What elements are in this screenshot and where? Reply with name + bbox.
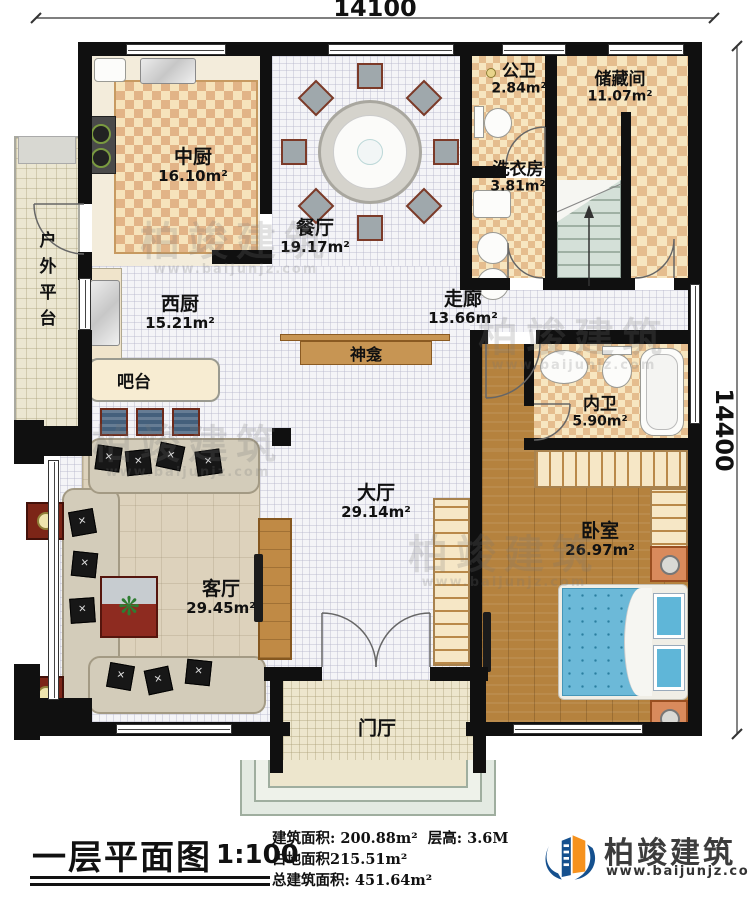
bar-counter: [88, 358, 220, 402]
window: [126, 44, 226, 55]
room-label-storage: 储藏间11.07m²: [587, 71, 652, 106]
bathtub-inner: [646, 354, 678, 430]
toilet-icon: [484, 108, 512, 138]
plan-info: 建筑面积: 200.88m² 层高: 3.6M 占地面积215.51m² 总建筑…: [272, 828, 522, 891]
hall-closet: [433, 498, 470, 666]
sofa-pillow: ✕: [94, 444, 122, 472]
bar-stool: [100, 408, 128, 436]
dimension-top: 14100: [333, 0, 417, 22]
wall: [473, 681, 486, 773]
bed-pillow: [654, 594, 684, 638]
kitchen-sink: [140, 58, 196, 84]
sofa-pillow: ✕: [68, 508, 97, 537]
lazy-susan: [357, 139, 383, 165]
toilet-icon: [602, 354, 632, 388]
window: [328, 44, 454, 55]
window: [690, 284, 700, 424]
sofa-pillow: ✕: [106, 662, 135, 691]
info-line-1: 建筑面积: 200.88m² 层高: 3.6M: [272, 828, 522, 849]
sofa-pillow: ✕: [69, 597, 96, 624]
stove-burner: [91, 124, 111, 144]
wall: [270, 681, 283, 773]
dining-chair: [357, 215, 383, 241]
room-label-laundry: 洗衣房3.81m²: [490, 161, 545, 196]
title-block: 一层平面图 1:100 建筑面积: 200.88m² 层高: 3.6M 占地面积…: [0, 820, 750, 897]
bar-stool: [136, 408, 164, 436]
room-label-dining: 餐厅19.17m²: [280, 218, 350, 256]
label-foyer: 门厅: [358, 714, 396, 741]
company-url: www.baijunjz.com: [606, 864, 750, 879]
room-label-ensuite: 内卫5.90m²: [572, 396, 627, 431]
toilet-tank: [474, 106, 484, 138]
label-outdoor-platform: 户外平台: [34, 231, 59, 335]
room-label-west-kitchen: 西厨15.21m²: [145, 294, 215, 332]
wall: [78, 42, 92, 204]
bed-pillow: [654, 646, 684, 690]
plan-title: 一层平面图: [32, 830, 212, 879]
bay-window: [48, 460, 59, 700]
wall: [430, 667, 488, 681]
wall: [78, 252, 92, 280]
floor-plan: ✕ ✕ ✕ ✕ ✕ ✕ ✕ ✕ ✕ ✕ ❋: [0, 0, 750, 897]
stove-burner: [91, 148, 111, 168]
platform-planter: [18, 136, 76, 164]
room-label-public-wc: 公卫2.84m²: [491, 63, 546, 98]
sofa-pillow: ✕: [144, 666, 174, 696]
window: [79, 278, 91, 330]
room-label-living: 客厅29.45m²: [186, 579, 256, 617]
wall: [524, 344, 534, 406]
sofa-pillow: ✕: [125, 449, 152, 476]
dining-chair: [357, 63, 383, 89]
kitchen-cabinet: [94, 58, 126, 82]
room-label-corridor: 走廊13.66m²: [428, 289, 498, 327]
coffee-table-with-plant: ❋: [100, 576, 158, 638]
dining-chair: [281, 139, 307, 165]
wall: [543, 278, 635, 290]
wall: [264, 667, 322, 681]
window: [502, 44, 566, 55]
wall: [212, 250, 272, 264]
window: [116, 724, 232, 734]
wall: [14, 664, 40, 740]
company-logo-icon: [540, 826, 598, 888]
sofa-pillow: ✕: [194, 448, 222, 476]
nightstand: [650, 546, 688, 582]
info-line-3: 总建筑面积: 451.64m²: [272, 870, 522, 891]
label-shrine: 神龛: [350, 341, 382, 365]
bar-stool: [172, 408, 200, 436]
room-label-hall: 大厅29.14m²: [341, 483, 411, 521]
shrine-plank: [280, 334, 450, 341]
west-kitchen-sink: [90, 280, 120, 346]
wall: [14, 420, 44, 464]
dimension-right: 14400: [710, 388, 738, 472]
laundry-basin: [477, 232, 509, 264]
sofa-pillow: ✕: [156, 442, 186, 472]
entry-steps: [268, 760, 468, 788]
wall: [524, 438, 688, 450]
bedroom-tv: [483, 612, 491, 672]
title-underline: [30, 883, 270, 886]
wall: [78, 330, 92, 436]
label-bar: 吧台: [117, 368, 151, 393]
wall: [260, 56, 272, 214]
title-underline: [30, 876, 270, 879]
window: [608, 44, 684, 55]
dining-chair: [433, 139, 459, 165]
room-label-bedroom: 卧室26.97m²: [565, 521, 635, 559]
nightstand-lamp: [660, 555, 680, 575]
wall: [536, 330, 688, 344]
wall: [470, 332, 482, 722]
sofa-pillow: ✕: [71, 551, 98, 578]
bed-blanket: [624, 588, 652, 696]
tv-cabinet: [258, 518, 292, 660]
sofa-pillow: ✕: [185, 659, 212, 686]
info-line-2: 占地面积215.51m²: [272, 849, 522, 870]
wall: [545, 56, 557, 278]
window: [513, 724, 643, 734]
wall: [621, 112, 631, 278]
bath-sink: [540, 350, 588, 384]
bedroom-closet: [534, 450, 688, 488]
room-label-chinese-kitchen: 中厨16.10m²: [158, 147, 228, 185]
structural-column: [272, 428, 291, 446]
